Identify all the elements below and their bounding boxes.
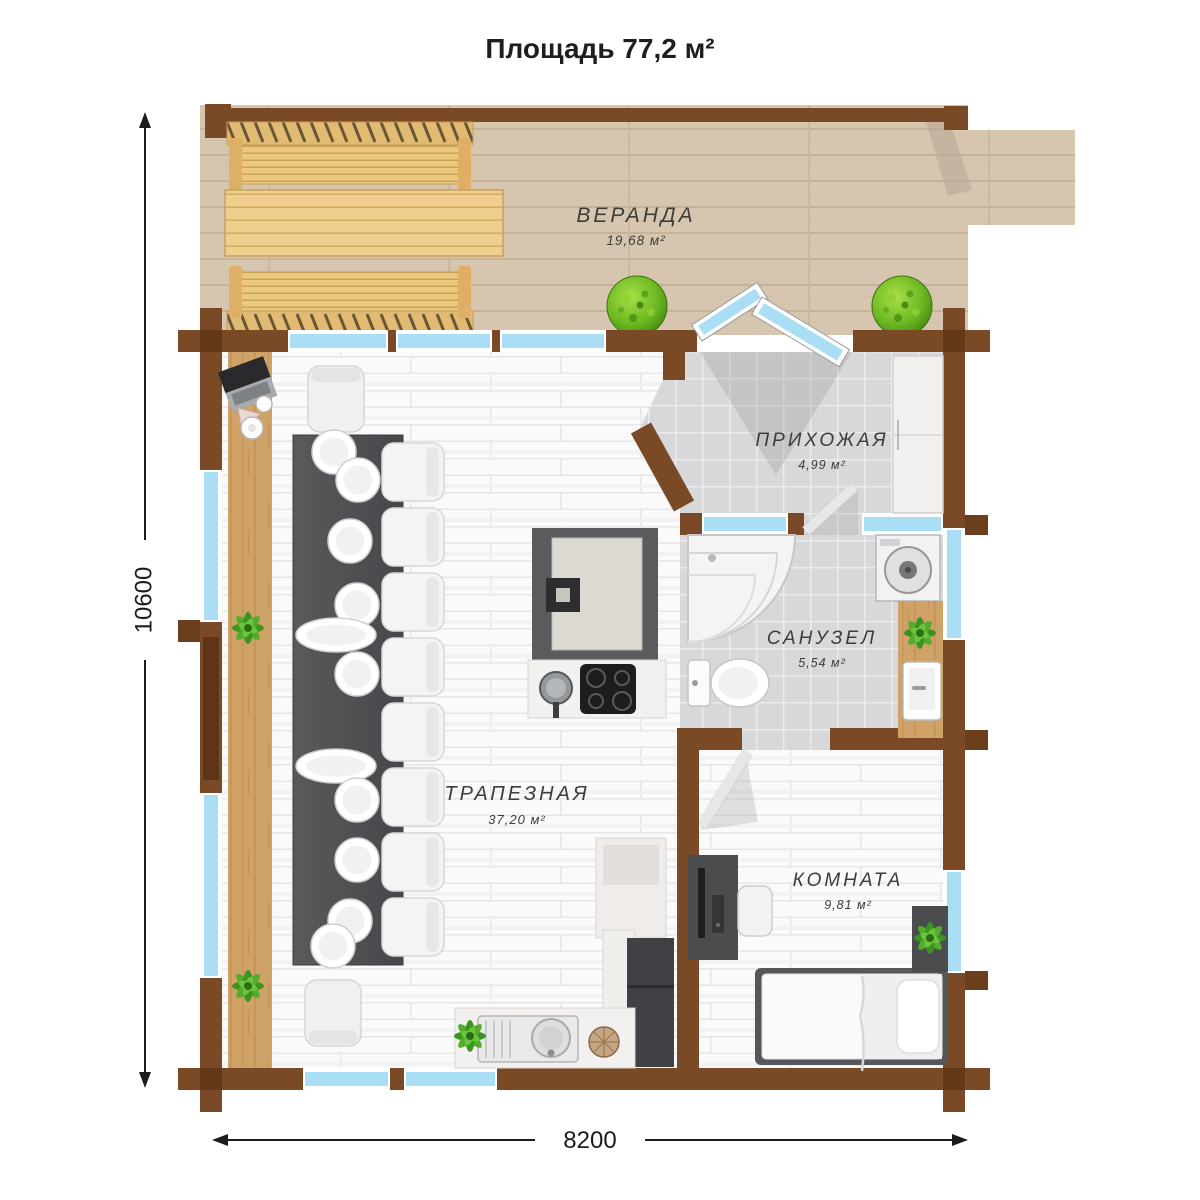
potted-plant <box>232 612 264 644</box>
veranda-post <box>944 106 968 130</box>
potted-plant <box>914 922 946 954</box>
chair <box>382 443 444 501</box>
bench-top <box>227 122 473 190</box>
veranda-table <box>225 190 503 256</box>
beam-end <box>965 730 988 750</box>
chair <box>382 833 444 891</box>
teapot-lid <box>248 424 256 432</box>
kitchen-sink <box>478 1016 578 1062</box>
computer-desk <box>688 855 738 960</box>
veranda-top-rail <box>228 108 950 122</box>
pc-tower <box>712 895 724 933</box>
chair <box>382 703 444 761</box>
bush-plant <box>872 276 932 336</box>
plate <box>335 652 379 696</box>
beam-end <box>178 620 200 642</box>
pillow <box>897 980 939 1053</box>
veranda-deck-walkway <box>968 130 1075 225</box>
plate-oval <box>296 749 376 783</box>
chair <box>308 366 364 432</box>
bathroom-label: САНУЗЕЛ <box>767 628 877 649</box>
chair <box>382 508 444 566</box>
cooktop-counter <box>528 660 666 718</box>
bush-plant <box>607 276 667 336</box>
side-wood-counter <box>228 348 272 1068</box>
faucet <box>548 1050 555 1057</box>
dining-area: 37,20 м² <box>488 812 545 827</box>
kitchen-cabinet-top <box>603 845 659 885</box>
plate <box>328 519 372 563</box>
bedroom-area: 9,81 м² <box>824 898 872 912</box>
bench-bottom <box>227 266 473 334</box>
page-title: Площадь 77,2 м² <box>485 33 714 64</box>
office-chair <box>738 886 772 936</box>
floor-plan-page: ВЕРАНДА 19,68 м² <box>0 0 1200 1200</box>
plate <box>311 924 355 968</box>
potted-plant <box>454 1020 486 1052</box>
dimension-height: 10600 <box>128 112 162 1088</box>
potted-plant <box>904 617 936 649</box>
cup <box>256 396 272 412</box>
floor-plan-canvas: ВЕРАНДА 19,68 м² <box>0 0 1200 1200</box>
veranda-area: 19,68 м² <box>606 233 665 248</box>
beam-end <box>965 971 988 990</box>
dining-label: ТРАПЕЗНАЯ <box>444 783 589 805</box>
basket <box>589 1027 619 1057</box>
bedroom-label: КОМНАТА <box>793 870 904 891</box>
hallway-label: ПРИХОЖАЯ <box>755 430 888 451</box>
veranda-label: ВЕРАНДА <box>576 204 695 227</box>
beam-end <box>965 515 988 535</box>
cooktop <box>580 664 636 714</box>
toilet <box>688 659 769 707</box>
faucet <box>912 686 926 690</box>
washing-machine <box>876 535 940 601</box>
chair <box>382 898 444 956</box>
dimension-height-value: 10600 <box>130 567 157 634</box>
potted-plant <box>232 970 264 1002</box>
monitor <box>698 868 705 938</box>
plate <box>336 458 380 502</box>
window <box>288 330 606 352</box>
dimension-width-value: 8200 <box>563 1127 616 1154</box>
veranda: ВЕРАНДА 19,68 м² <box>200 104 1075 336</box>
chair <box>382 638 444 696</box>
chair <box>305 980 361 1046</box>
bathroom-sink <box>903 662 941 720</box>
hallway-area: 4,99 м² <box>798 458 846 472</box>
bathroom-area: 5,54 м² <box>798 656 846 670</box>
chair <box>382 573 444 631</box>
bed <box>755 968 948 1071</box>
stove <box>532 528 658 660</box>
plate-oval <box>296 618 376 652</box>
plate <box>335 838 379 882</box>
chair <box>382 768 444 826</box>
plate <box>335 778 379 822</box>
dimension-width: 8200 <box>212 1122 968 1156</box>
